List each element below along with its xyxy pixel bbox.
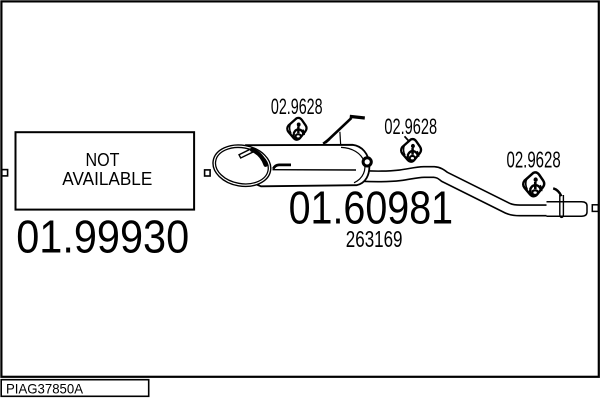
svg-text:AVAILABLE: AVAILABLE: [62, 168, 152, 189]
svg-text:NOT: NOT: [86, 149, 120, 170]
svg-text:263169: 263169: [346, 226, 403, 252]
svg-text:02.9628: 02.9628: [507, 146, 561, 172]
svg-text:02.9628: 02.9628: [384, 114, 437, 139]
svg-text:02.9628: 02.9628: [271, 94, 323, 119]
svg-text:PIAG37850A: PIAG37850A: [6, 382, 84, 397]
svg-text:01.99930: 01.99930: [16, 210, 189, 262]
